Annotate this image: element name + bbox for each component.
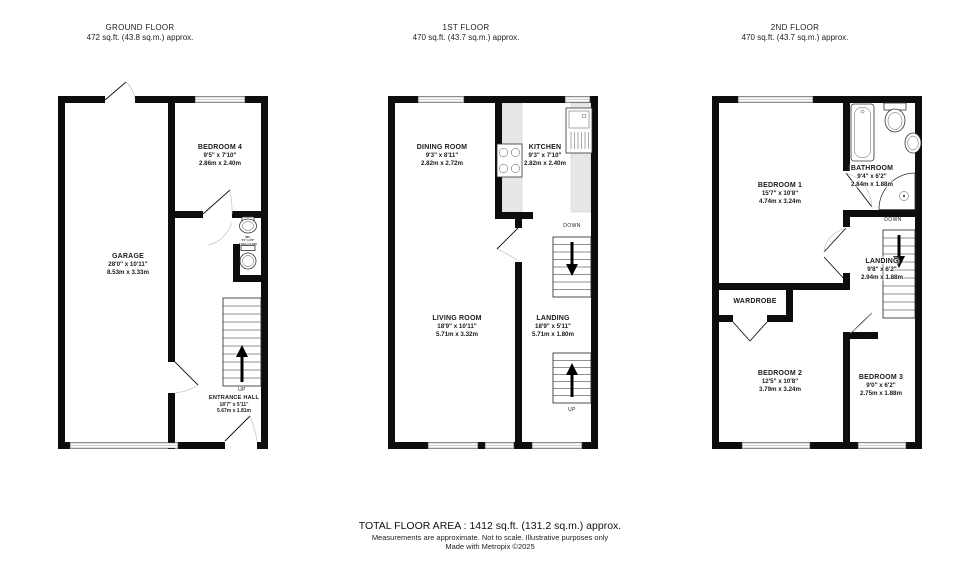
room-label-garage: GARAGE 28'0" x 10'11" 8.53m x 3.33m: [107, 253, 149, 277]
ground-floor-plan: BEDROOM 4 9'5" x 7'10" 2.86m x 2.40m GAR…: [58, 95, 268, 450]
second-floor-title: 2ND FLOOR: [685, 23, 905, 33]
room-label-kitchen: KITCHEN 9'3" x 7'10" 2.82m x 2.40m: [524, 144, 566, 168]
stairs-down-label: DOWN: [563, 223, 580, 229]
room-label-living-room: LIVING ROOM 18'9" x 10'11" 5.71m x 3.32m: [432, 315, 481, 339]
door-swing: [733, 173, 872, 341]
floorplan-page: GROUND FLOOR 472 sq.ft. (43.8 sq.m.) app…: [0, 0, 980, 581]
second-floor-header: 2ND FLOOR 470 sq.ft. (43.7 sq.m.) approx…: [685, 23, 905, 43]
kitchen-sink-icon: [566, 108, 592, 153]
ground-floor-area: 472 sq.ft. (43.8 sq.m.) approx.: [30, 33, 250, 43]
stairs-up: [553, 353, 591, 403]
first-floor-title: 1ST FLOOR: [356, 23, 576, 33]
room-label-dining-room: DINING ROOM 9'3" x 8'11" 2.82m x 2.72m: [417, 144, 467, 168]
room-label-landing-second: LANDING 9'8" x 6'2" 2.94m x 1.88m: [861, 258, 903, 282]
stairs-up-label: UP: [568, 407, 576, 413]
second-floor-plan: BEDROOM 1 15'7" x 10'8" 4.74m x 3.24m BA…: [712, 95, 922, 450]
first-floor-header: 1ST FLOOR 470 sq.ft. (43.7 sq.m.) approx…: [356, 23, 576, 43]
room-label-bedroom-4: BEDROOM 4 9'5" x 7'10" 2.86m x 2.40m: [198, 144, 242, 168]
stairs-down-label: DOWN: [884, 217, 901, 223]
sink-icon: [905, 133, 921, 153]
stairs: [223, 298, 261, 386]
room-label-wc: WC 5'1" x 2'6" 1.54m x 0.76m: [239, 236, 257, 246]
hob-icon: [497, 144, 522, 177]
bath-icon: [851, 104, 874, 161]
room-label-landing-first: LANDING 18'9" x 5'11" 5.71m x 1.80m: [532, 315, 574, 339]
stairs-up-label: UP: [238, 387, 246, 393]
room-label-bathroom: BATHROOM 9'4" x 6'2" 2.84m x 1.88m: [851, 165, 893, 189]
footer: TOTAL FLOOR AREA : 1412 sq.ft. (131.2 sq…: [0, 519, 980, 551]
room-label-bedroom-2: BEDROOM 2 12'5" x 10'8" 3.79m x 3.24m: [758, 370, 802, 394]
toilet-icon: [240, 246, 256, 270]
ground-floor-title: GROUND FLOOR: [30, 23, 250, 33]
ground-floor-header: GROUND FLOOR 472 sq.ft. (43.8 sq.m.) app…: [30, 23, 250, 43]
credit: Made with Metropix ©2025: [0, 542, 980, 551]
sink-icon: [240, 217, 257, 233]
door-swing: [497, 228, 518, 261]
disclaimer: Measurements are approximate. Not to sca…: [0, 533, 980, 542]
room-label-entrance-hall: ENTRANCE HALL 18'7" x 5'11" 5.67m x 1.81…: [209, 395, 259, 415]
room-label-bedroom-1: BEDROOM 1 15'7" x 10'8" 4.74m x 3.24m: [758, 182, 802, 206]
toilet-icon: [884, 103, 906, 132]
second-floor-area: 470 sq.ft. (43.7 sq.m.) approx.: [685, 33, 905, 43]
total-floor-area: TOTAL FLOOR AREA : 1412 sq.ft. (131.2 sq…: [0, 519, 980, 533]
first-floor-area: 470 sq.ft. (43.7 sq.m.) approx.: [356, 33, 576, 43]
stairs-down: [553, 237, 591, 297]
room-label-wardrobe: WARDROBE: [733, 298, 776, 306]
first-floor-plan: DINING ROOM 9'3" x 8'11" 2.82m x 2.72m K…: [388, 95, 598, 450]
room-label-bedroom-3: BEDROOM 3 9'0" x 6'2" 2.75m x 1.88m: [859, 374, 903, 398]
